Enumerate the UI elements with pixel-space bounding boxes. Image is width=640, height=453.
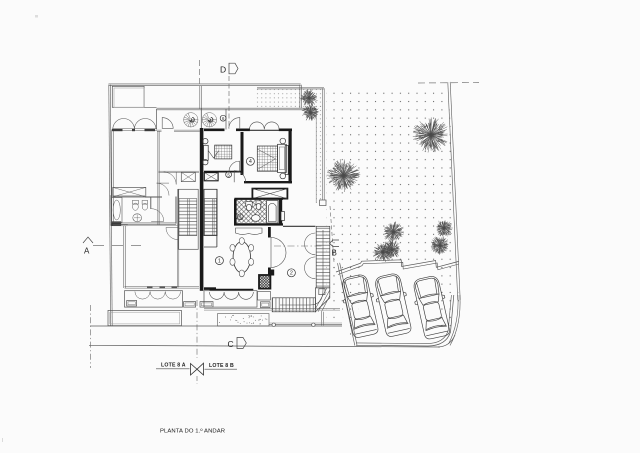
svg-text:6: 6 [222, 116, 225, 121]
svg-text:B: B [332, 249, 337, 258]
svg-text:5: 5 [227, 172, 230, 177]
svg-text:4: 4 [249, 159, 252, 165]
svg-text:A: A [84, 247, 90, 256]
svg-text:2: 2 [290, 271, 293, 277]
svg-text:PLANTA DO 1.º ANDAR: PLANTA DO 1.º ANDAR [160, 428, 225, 435]
svg-text:D: D [220, 65, 226, 75]
svg-text:C: C [228, 339, 234, 349]
svg-text:3: 3 [239, 214, 242, 219]
svg-text:LOTE 8 A: LOTE 8 A [161, 362, 186, 368]
svg-text:LOTE 8 B: LOTE 8 B [209, 363, 234, 369]
svg-text:1: 1 [218, 259, 221, 265]
